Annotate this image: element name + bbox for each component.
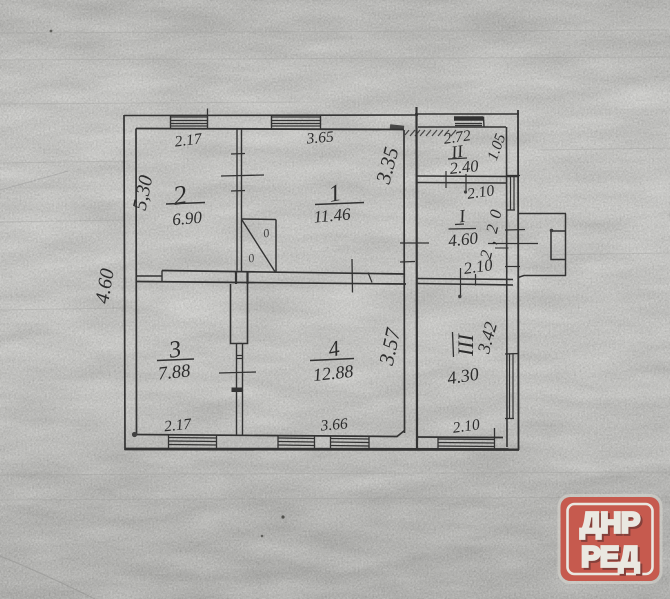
svg-text:ДНР: ДНР: [580, 508, 640, 540]
svg-text:2.17: 2.17: [174, 130, 204, 150]
svg-text:3.65: 3.65: [305, 128, 335, 147]
svg-text:3.66: 3.66: [319, 415, 349, 434]
svg-text:РЕД: РЕД: [581, 542, 640, 574]
svg-text:2.17: 2.17: [163, 415, 193, 435]
svg-text:2.40: 2.40: [449, 156, 480, 178]
svg-text:6.90: 6.90: [171, 208, 203, 230]
svg-text:11.46: 11.46: [313, 204, 352, 226]
svg-text:7.88: 7.88: [157, 361, 192, 384]
svg-text:12.88: 12.88: [312, 361, 354, 385]
svg-text:4.60: 4.60: [447, 228, 479, 250]
